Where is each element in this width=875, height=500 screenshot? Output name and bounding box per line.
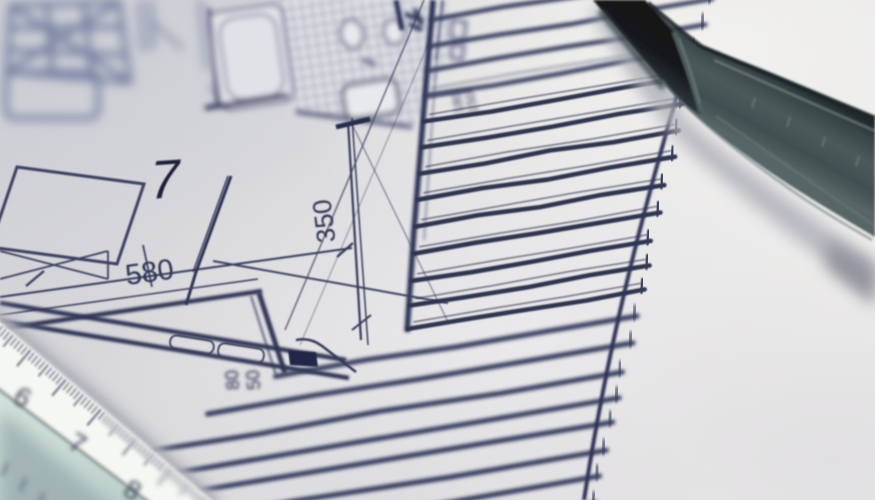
svg-text:350: 350 — [306, 198, 341, 245]
svg-text:580: 580 — [123, 254, 175, 292]
svg-text:50: 50 — [243, 369, 265, 391]
svg-text:80: 80 — [222, 369, 244, 391]
